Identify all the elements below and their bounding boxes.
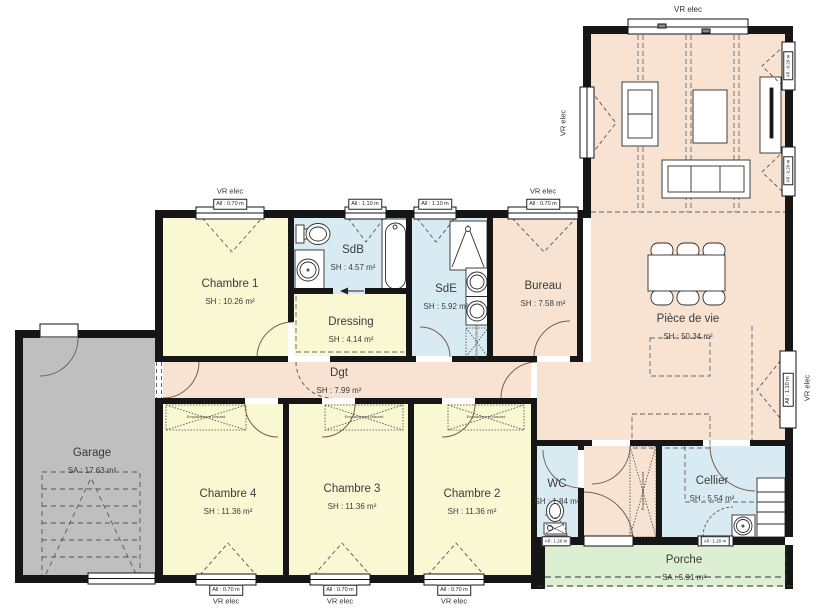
room-label-sde: SdE SH : 5.92 m² xyxy=(424,279,469,314)
vr-elec-label: VR elec xyxy=(441,597,467,605)
window-height-label: All : 1.20 m xyxy=(701,536,730,546)
closet-label: Emplacement placard xyxy=(475,325,479,359)
window-height-label: All : 1.10 m xyxy=(348,199,382,210)
room-label-sdb: SdB SH : 4.57 m² xyxy=(331,240,376,275)
entry-upper-floor xyxy=(537,362,591,440)
window-height-label: All : 0.70 m xyxy=(213,199,247,210)
entry-corridor-floor xyxy=(584,446,630,537)
window-chambre3 xyxy=(310,574,370,585)
window-height-label: All : 1.20 m xyxy=(542,536,571,546)
window-height-label: All : 0.70 m xyxy=(323,585,357,596)
window-height-label: All : 0.20 m xyxy=(783,157,793,186)
sofa-two-seat xyxy=(622,82,658,146)
closet-label: Emplacement placard xyxy=(467,415,506,419)
window-height-label: All : 0.70 m xyxy=(209,585,243,596)
toilet-sdb xyxy=(296,224,330,245)
room-living-floor xyxy=(591,34,785,440)
room-label-wc: WC SH : 1.84 m² xyxy=(535,474,580,509)
floor-plan: Chambre 1 SH : 10.26 m² SdB SH : 4.57 m²… xyxy=(0,0,835,608)
bathtub xyxy=(382,219,409,293)
floor-plan-canvas xyxy=(0,0,835,608)
shower xyxy=(450,221,487,270)
room-label-cellier: Cellier SH : 5.54 m² xyxy=(690,471,735,506)
room-label-chambre-2: Chambre 2 SH : 11.36 m² xyxy=(444,484,501,519)
room-label-piece-de-vie: Pièce de vie SH : 50.34 m² xyxy=(657,309,720,344)
room-label-chambre-4: Chambre 4 SH : 11.36 m² xyxy=(200,484,257,519)
coffee-table xyxy=(693,90,727,143)
tv-cabinet xyxy=(760,77,781,153)
closet-label: Emplacement placard xyxy=(187,415,226,419)
room-label-dressing: Dressing SH : 4.14 m² xyxy=(328,312,373,347)
window-height-label: All : 1.10 m xyxy=(418,199,452,210)
window-height-label: All : 0.20 m xyxy=(783,52,793,81)
vr-elec-label: VR elec xyxy=(559,110,567,136)
double-washbasin-sde xyxy=(466,268,488,325)
garage-door-jamb-dashed xyxy=(157,362,162,398)
front-door-threshold xyxy=(584,536,633,546)
room-label-porche: Porche SA : 5.91 m² xyxy=(662,550,706,585)
washbasin-sdb xyxy=(295,250,324,292)
window-chambre2 xyxy=(424,574,484,585)
washing-machine xyxy=(732,515,755,537)
garage-service-door-leaf xyxy=(40,324,78,337)
vr-elec-label: VR elec xyxy=(674,6,702,14)
room-label-chambre-1: Chambre 1 SH : 10.26 m² xyxy=(202,274,259,309)
garage-main-door xyxy=(88,573,155,584)
vr-elec-label: VR elec xyxy=(213,597,239,605)
room-label-bureau: Bureau SH : 7.58 m² xyxy=(521,276,566,311)
vr-elec-label: VR elec xyxy=(217,187,243,195)
vr-elec-label: VR elec xyxy=(530,187,556,195)
sofa-three-seat xyxy=(662,160,750,198)
closet-label: Emplacement placard xyxy=(345,415,384,419)
window-height-label: All : 0.70 m xyxy=(526,199,560,210)
room-label-garage: Garage SA : 17.63 m² xyxy=(68,443,116,478)
cellier-shelves xyxy=(757,478,785,537)
window-height-label: All : 1.10 m xyxy=(783,373,794,407)
vr-elec-label: VR elec xyxy=(803,375,811,401)
window-height-label: All : 0.70 m xyxy=(437,585,471,596)
window-living-left xyxy=(580,87,594,158)
vr-elec-label: VR elec xyxy=(327,597,353,605)
bay-window xyxy=(628,19,748,34)
room-label-dgt: Dgt SH : 7.99 m² xyxy=(317,363,362,398)
closet-label: Emplacement placard xyxy=(641,472,645,511)
window-chambre4 xyxy=(196,574,256,585)
dining-table xyxy=(648,255,725,291)
room-label-chambre-3: Chambre 3 SH : 11.36 m² xyxy=(324,479,381,514)
